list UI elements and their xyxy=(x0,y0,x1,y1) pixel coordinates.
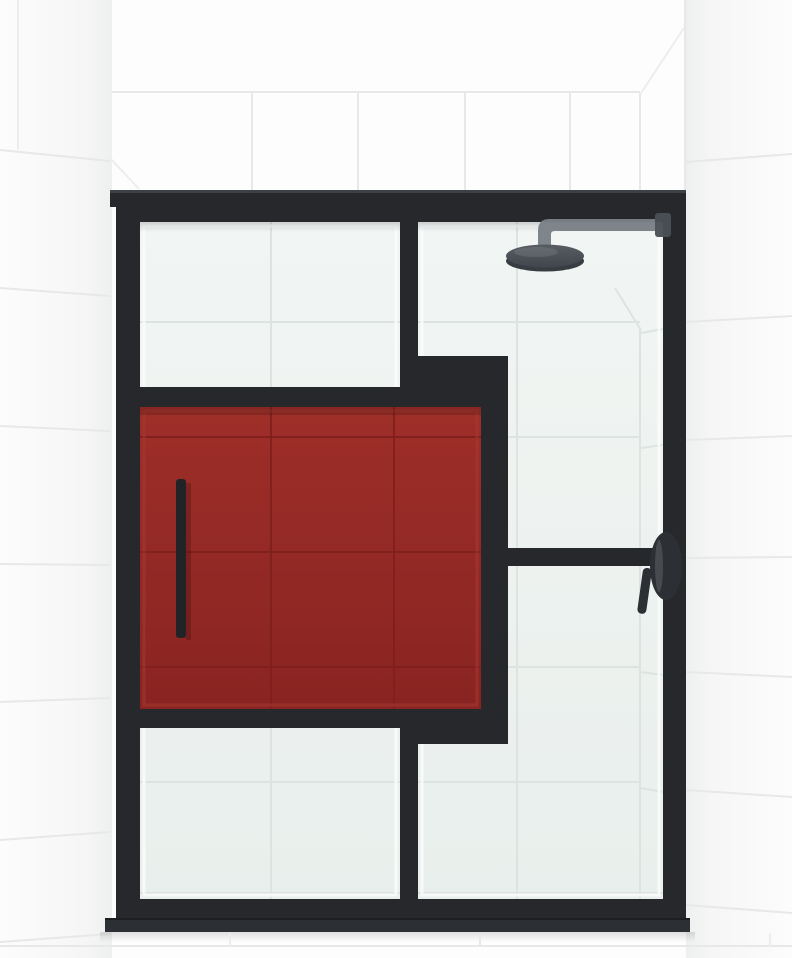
red-panel-frame-top xyxy=(116,387,508,407)
shower-arm xyxy=(548,219,666,231)
red-panel-assembly xyxy=(116,387,508,744)
sill-seam xyxy=(105,918,690,920)
tiled-right-side-wall xyxy=(686,0,792,958)
center-mullion-lower xyxy=(400,744,418,918)
door-pull-handle xyxy=(176,479,186,638)
bottom-sill-group xyxy=(100,918,695,942)
door-handle-shadow xyxy=(186,483,191,640)
red-glass-panel xyxy=(140,407,481,709)
shower-arm-mount xyxy=(655,213,671,237)
red-panel-frame-right xyxy=(481,387,508,744)
bottom-sill xyxy=(105,918,690,932)
frame-header xyxy=(110,193,686,207)
sill-floor-shadow xyxy=(100,932,695,942)
valve-escutcheon xyxy=(650,532,682,600)
shower-head-highlight xyxy=(514,247,558,257)
bottom-rail xyxy=(140,899,663,918)
scene-svg xyxy=(0,0,792,958)
tiled-left-side-wall xyxy=(0,0,112,958)
valve-escutcheon-highlight xyxy=(655,540,663,592)
red-panel-frame-bottom xyxy=(116,709,508,728)
left-stile xyxy=(116,207,140,918)
center-mullion-upper xyxy=(400,207,418,358)
right-horizontal-mullion xyxy=(505,548,663,566)
shower-enclosure-product-image xyxy=(0,0,792,958)
transom-jog-upper xyxy=(400,356,508,389)
